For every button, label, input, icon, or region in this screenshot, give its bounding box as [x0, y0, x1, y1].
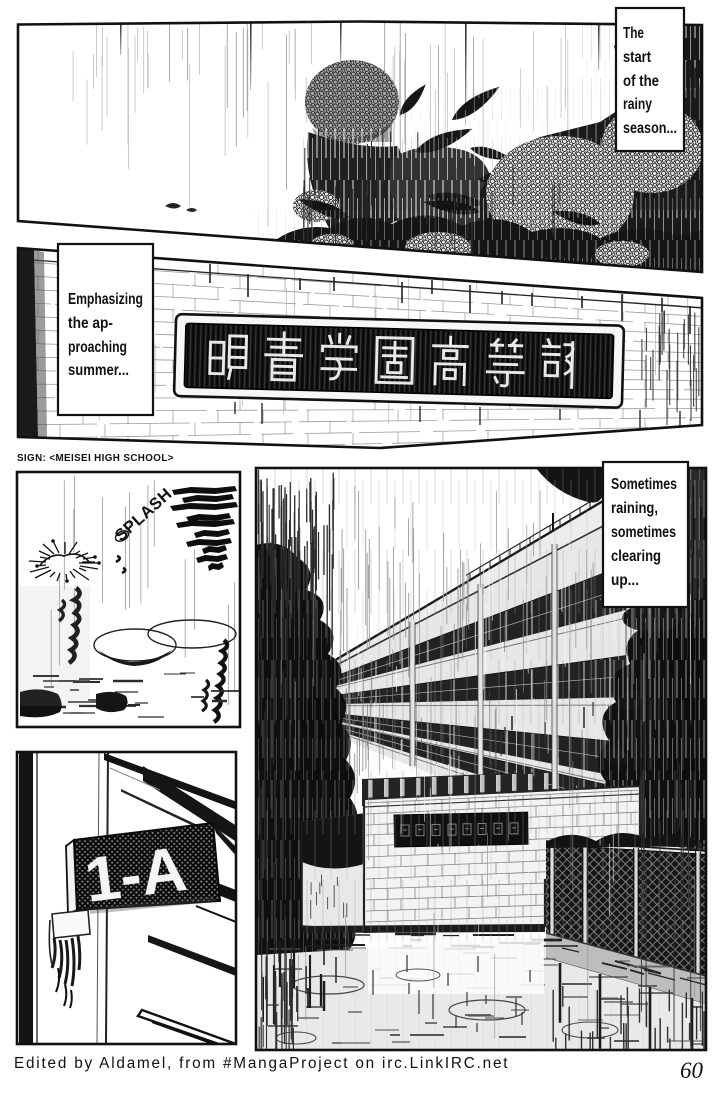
svg-text:Emphasizing: Emphasizing: [68, 291, 143, 308]
svg-text:Sometimes: Sometimes: [611, 476, 677, 493]
svg-text:raining,: raining,: [611, 500, 658, 517]
svg-text:proaching: proaching: [68, 339, 127, 356]
svg-text:season...: season...: [623, 120, 677, 137]
svg-text:60: 60: [680, 1058, 704, 1083]
svg-text:Edited by Aldamel, from #Manga: Edited by Aldamel, from #MangaProject on…: [14, 1055, 509, 1072]
svg-text:the ap-: the ap-: [68, 315, 113, 332]
svg-text:clearing: clearing: [611, 548, 661, 565]
svg-text:start: start: [623, 49, 651, 66]
svg-text:summer...: summer...: [68, 362, 129, 379]
svg-text:rainy: rainy: [623, 96, 652, 113]
svg-text:of the: of the: [623, 73, 659, 90]
svg-text:up...: up...: [611, 572, 639, 589]
svg-text:sometimes: sometimes: [611, 524, 676, 541]
svg-text:SIGN: <MEISEI HIGH SCHOOL>: SIGN: <MEISEI HIGH SCHOOL>: [17, 453, 174, 464]
svg-text:The: The: [623, 25, 644, 42]
